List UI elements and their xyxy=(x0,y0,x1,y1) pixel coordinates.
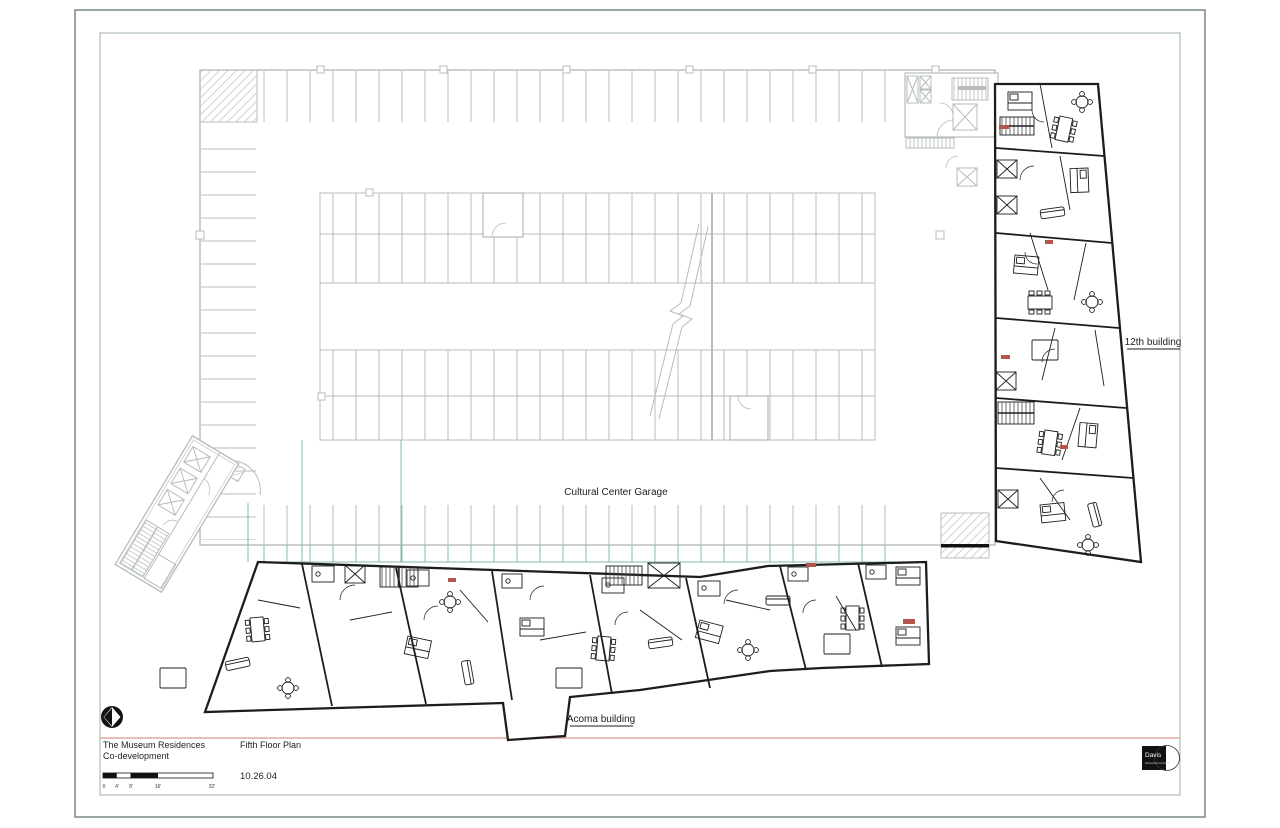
drawing-sheet-page: Cultural Center Garage 12th building Aco… xyxy=(0,0,1280,828)
north-arrow-icon xyxy=(101,706,123,728)
firm-subtitle: Partnership Architects xyxy=(1145,761,1171,765)
scale-label-32: 32' xyxy=(209,784,216,790)
right-building-label: 12th building xyxy=(1125,337,1182,348)
firm-name: Davis xyxy=(1145,752,1162,759)
bottom-building-label: Acoma building xyxy=(567,714,635,725)
sheet-title: Fifth Floor Plan xyxy=(240,740,301,750)
project-name-line2: Co-development xyxy=(103,751,170,761)
scale-label-8: 8' xyxy=(129,784,133,790)
project-name-line1: The Museum Residences xyxy=(103,740,206,750)
sheet-date: 10.26.04 xyxy=(240,771,277,782)
scale-label-0: 0 xyxy=(103,784,106,790)
scale-label-4: 4' xyxy=(115,784,119,790)
scale-label-16: 16' xyxy=(155,784,162,790)
floor-plan-drawing: Cultural Center Garage 12th building Aco… xyxy=(0,0,1280,828)
garage-label: Cultural Center Garage xyxy=(564,487,668,498)
